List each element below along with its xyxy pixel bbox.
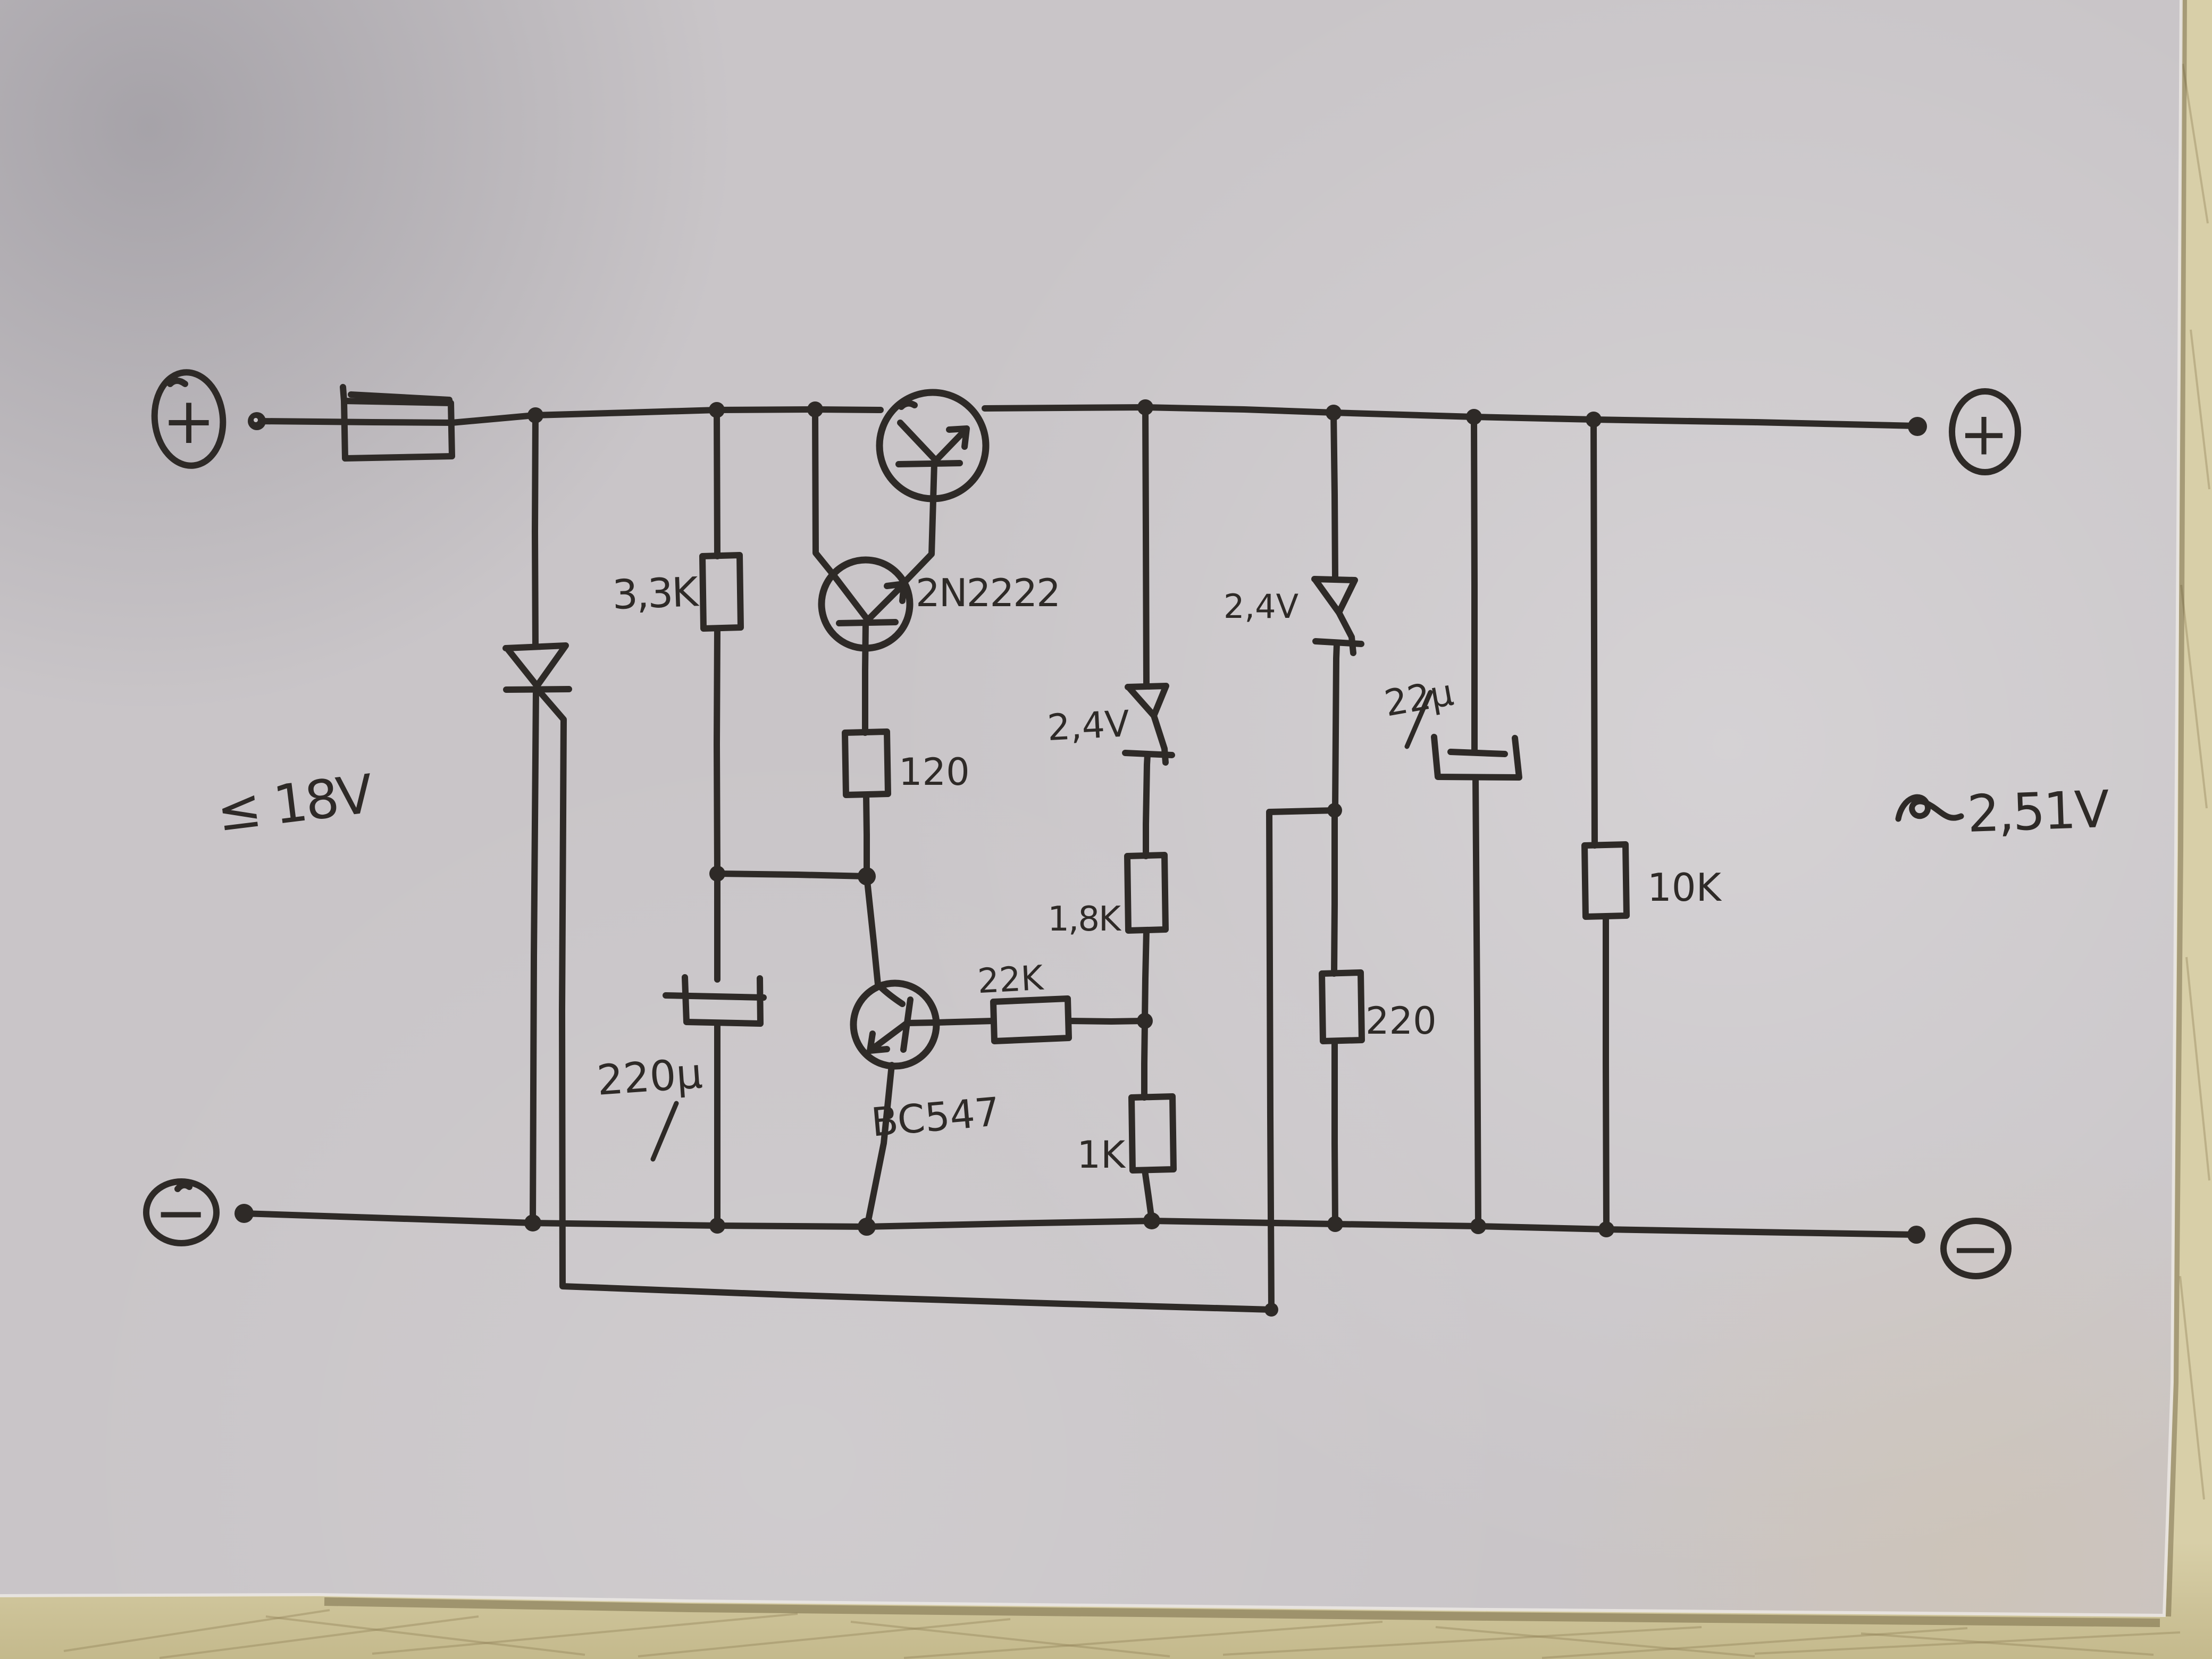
wire — [1069, 1021, 1144, 1021]
wire — [1474, 417, 1474, 751]
label-r-220: 220 — [1365, 999, 1437, 1043]
wire-start-dot — [234, 1204, 254, 1223]
terminal-plus-right-label: + — [1959, 399, 2009, 468]
junction-dot — [1137, 399, 1153, 415]
junction-dot — [1143, 1212, 1160, 1229]
schematic-svg: + + − − — [0, 0, 2212, 1659]
cap-top-plate — [666, 995, 764, 998]
fuse-left-tick — [343, 387, 344, 401]
label-zener-right: 2,4V — [1224, 587, 1298, 626]
terminal-minus-right-label: − — [1950, 1214, 2000, 1284]
node-link-wire — [717, 874, 867, 876]
wire — [1335, 1041, 1335, 1223]
junction-dot — [858, 1218, 876, 1236]
wire — [1145, 931, 1146, 1020]
pen-tick — [901, 404, 915, 407]
label-r-1k8: 1,8K — [1048, 900, 1122, 939]
label-r-120: 120 — [899, 750, 970, 794]
base-bar — [899, 463, 960, 464]
wire-end-dot — [1908, 417, 1927, 436]
junction-dot — [1586, 412, 1602, 428]
wire — [1334, 810, 1335, 974]
label-zener-mid: 2,4V — [1046, 703, 1131, 749]
junction-dot — [858, 867, 876, 885]
junction-dot — [1327, 1216, 1343, 1232]
wire — [1146, 755, 1147, 856]
junction-dot — [1598, 1221, 1614, 1237]
label-output-voltage: 2,51V — [1966, 780, 2110, 844]
label-r-3k3: 3,3K — [611, 568, 700, 618]
wire — [1144, 1022, 1145, 1097]
wire — [1145, 407, 1146, 686]
wire — [1476, 777, 1478, 1225]
terminal-plus-left-label: + — [162, 384, 216, 458]
anode-wire — [535, 415, 535, 647]
base-lead — [907, 1021, 993, 1023]
junction-dot — [807, 401, 823, 417]
wire — [1594, 420, 1595, 845]
wire — [1606, 917, 1606, 1228]
junction-dot — [709, 866, 725, 882]
label-2n2222: 2N2222 — [916, 571, 1060, 615]
wire — [717, 629, 717, 873]
cathode-wire — [533, 690, 536, 1223]
junction-dot — [1470, 1218, 1486, 1234]
wire — [1334, 413, 1335, 578]
junction-dot — [1466, 409, 1482, 425]
junction-dot — [1326, 405, 1342, 421]
label-r-1k: 1K — [1077, 1133, 1127, 1177]
junction-dot — [1137, 1013, 1153, 1029]
junction-dot — [709, 1218, 725, 1234]
label-r-22k: 22K — [977, 959, 1045, 1001]
photo-of-schematic: + + − − — [0, 0, 2212, 1659]
pen-pinhole — [254, 418, 258, 422]
terminal-minus-left-label: − — [154, 1176, 208, 1250]
wire — [717, 410, 717, 556]
wire — [866, 795, 867, 875]
junction-dot — [524, 1214, 541, 1231]
label-r-10k: 10K — [1647, 865, 1722, 910]
wire-end-dot — [1907, 1226, 1925, 1244]
junction-dot — [527, 407, 543, 423]
label-cap-220u: 220µ — [596, 1050, 704, 1105]
wire — [1335, 644, 1337, 809]
junction-dot — [1327, 803, 1342, 818]
emitter-lead-down — [865, 623, 866, 733]
junction-dot — [1264, 1303, 1278, 1317]
junction-dot — [709, 402, 725, 418]
pen-tick — [170, 381, 185, 384]
cap-top-plate — [1451, 752, 1505, 754]
